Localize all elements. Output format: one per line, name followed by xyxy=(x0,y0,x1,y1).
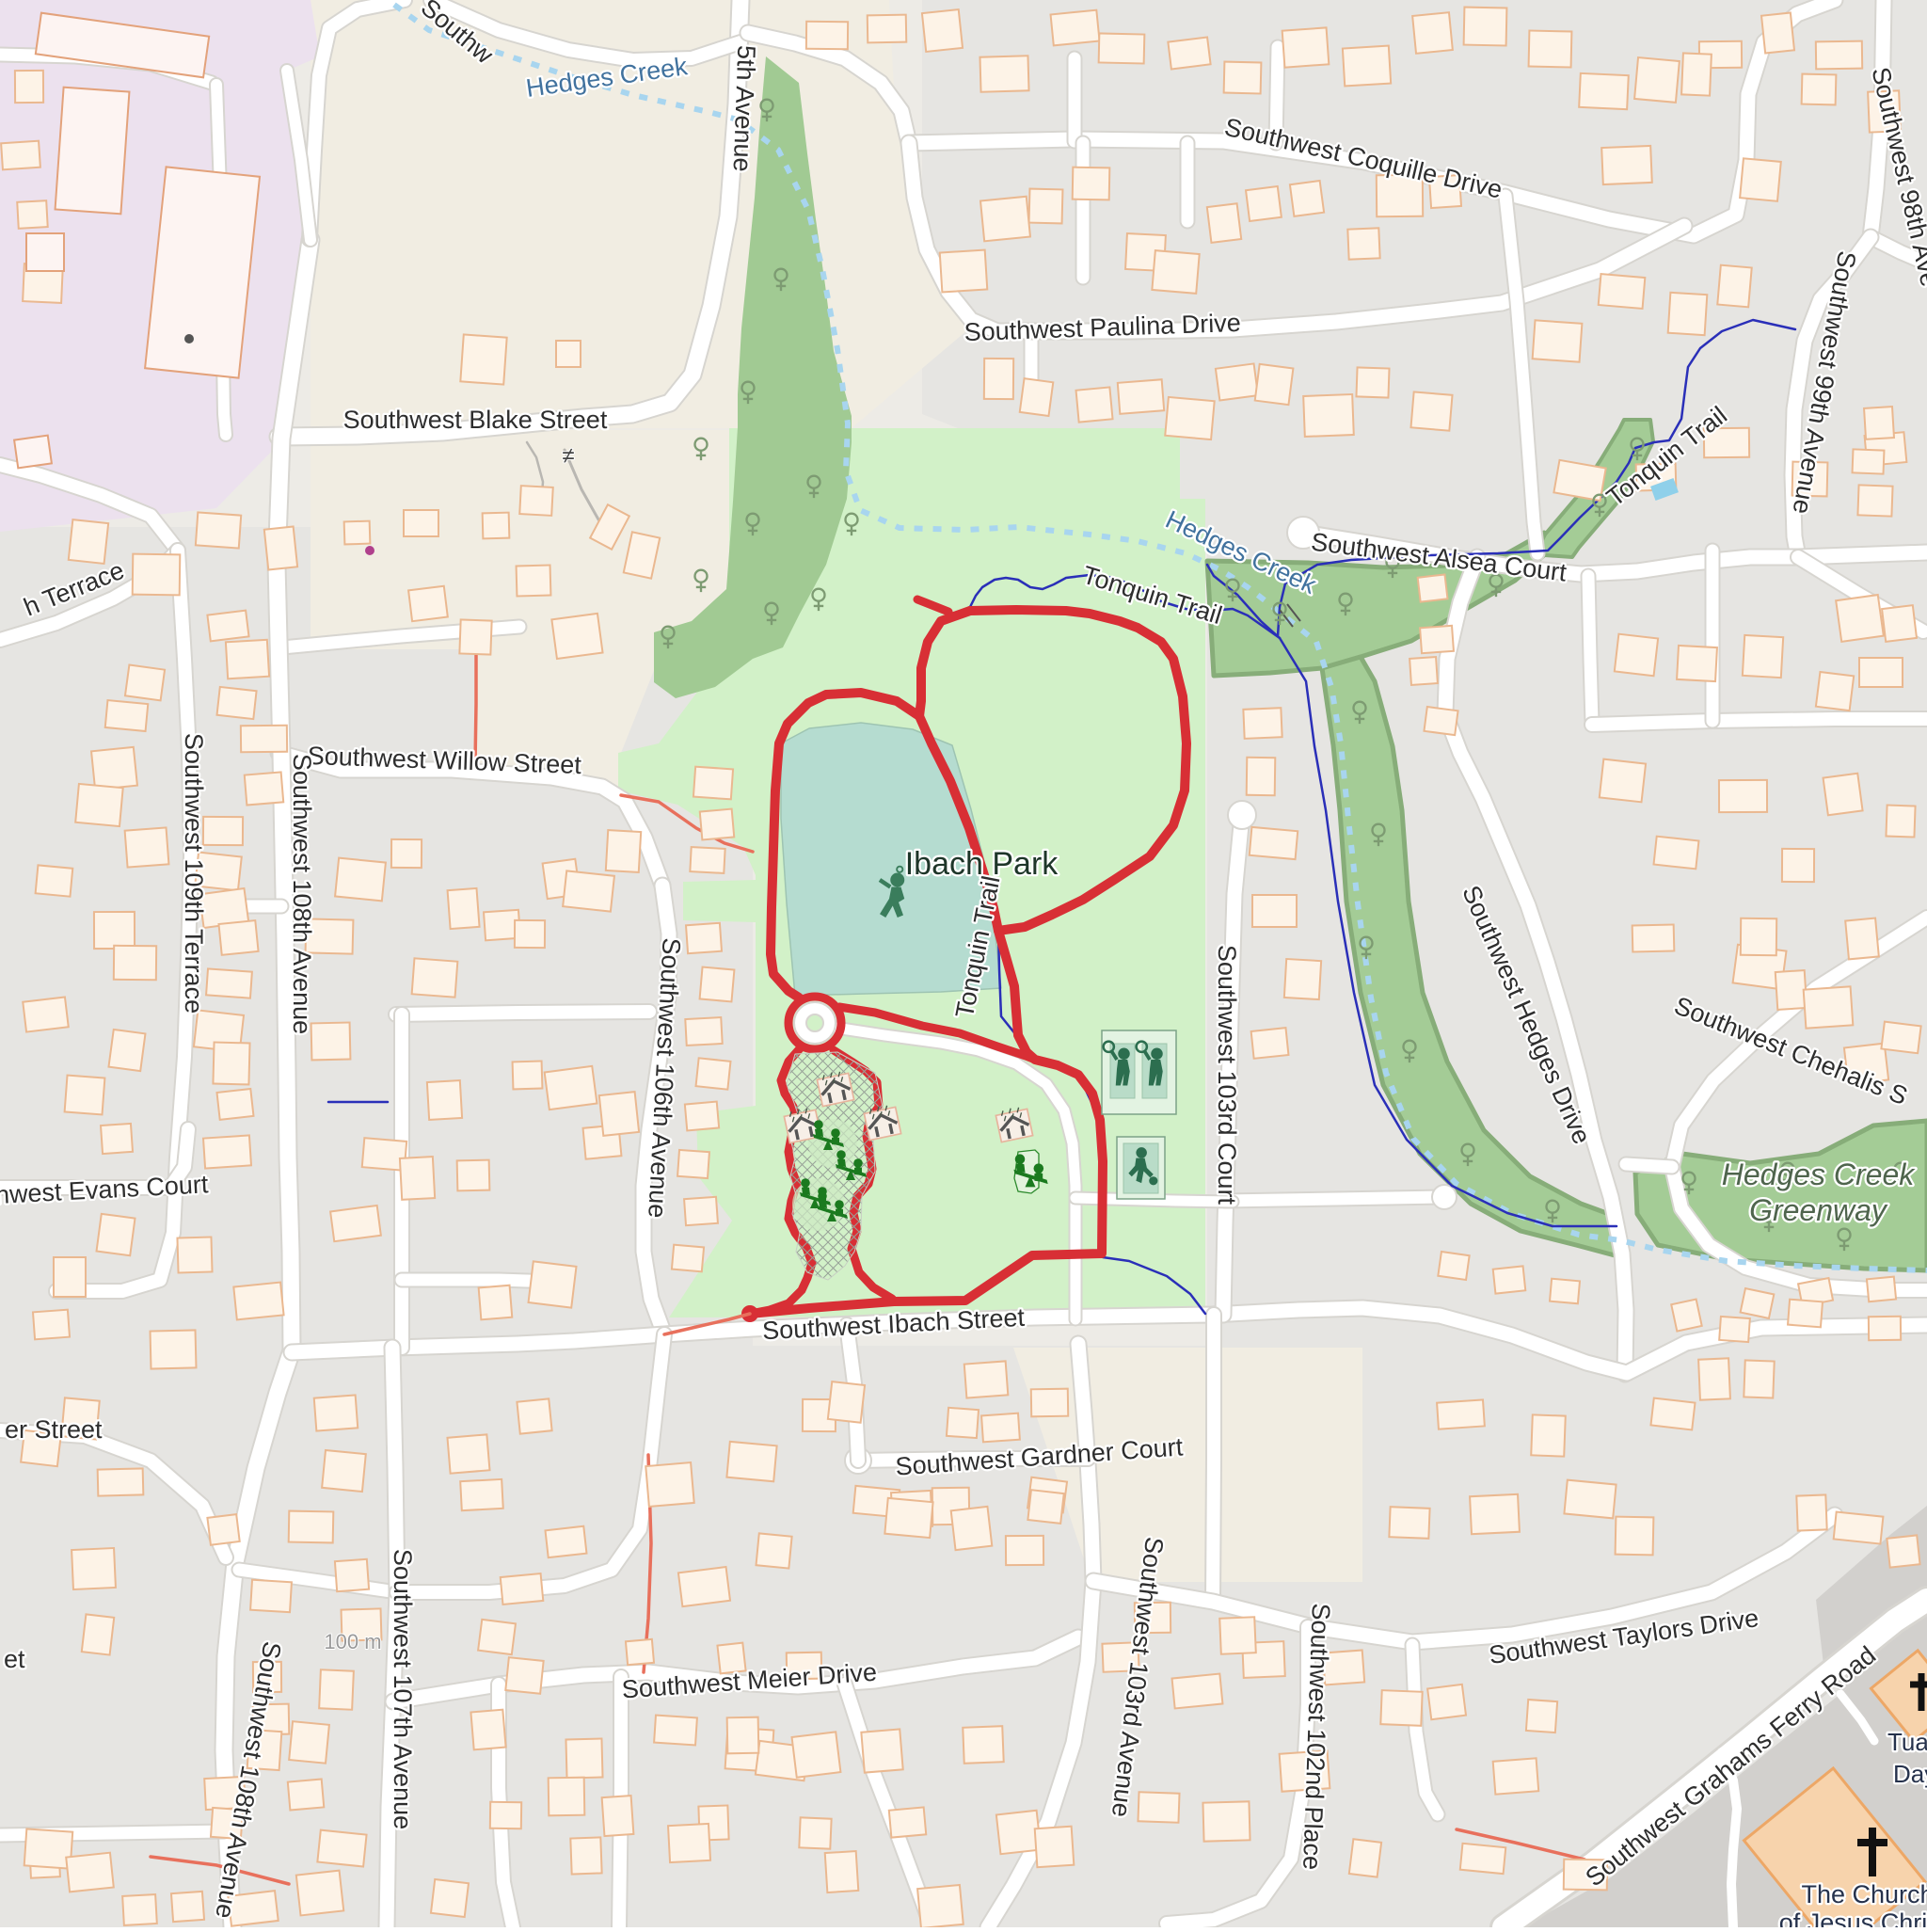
svg-text:Tuala: Tuala xyxy=(1887,1728,1927,1756)
svg-text:Southwest Blake Street: Southwest Blake Street xyxy=(343,406,608,434)
svg-text:Southwest 107th Avenue: Southwest 107th Avenue xyxy=(389,1549,417,1829)
svg-text:Southwest 108th Avenue: Southwest 108th Avenue xyxy=(288,754,316,1034)
svg-text:Ibach Park: Ibach Park xyxy=(905,846,1059,882)
svg-text:The Church: The Church xyxy=(1801,1880,1927,1908)
svg-text:≠: ≠ xyxy=(562,443,574,469)
svg-text:et: et xyxy=(4,1645,25,1673)
svg-text:of Jesus Christ: of Jesus Christ xyxy=(1779,1908,1927,1927)
svg-text:Greenway: Greenway xyxy=(1749,1193,1888,1227)
svg-text:5th Avenue: 5th Avenue xyxy=(728,45,761,173)
svg-text:Southwest 103rd Court: Southwest 103rd Court xyxy=(1213,945,1241,1206)
svg-text:100 m: 100 m xyxy=(324,1630,381,1653)
svg-text:er Street: er Street xyxy=(5,1415,103,1444)
svg-text:Day: Day xyxy=(1893,1760,1927,1788)
svg-text:Hedges Creek: Hedges Creek xyxy=(1722,1158,1917,1191)
svg-text:Southwest 109th Terrace: Southwest 109th Terrace xyxy=(180,733,208,1014)
